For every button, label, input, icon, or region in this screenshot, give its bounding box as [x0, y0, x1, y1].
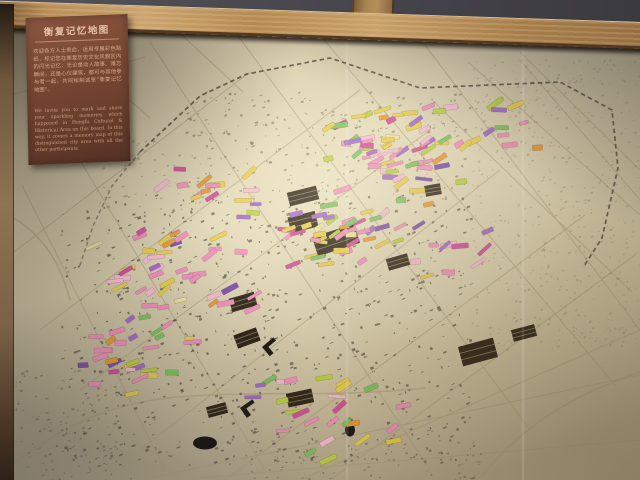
plaque-chinese-text: 欢迎各方人士来此，运用专属彩色贴纸，标记您在衡复历史文化风貌区内的闪光记忆：无论…: [33, 44, 122, 94]
landmark-buildings: [193, 183, 537, 449]
wood-frame-left: [0, 4, 14, 480]
photo-of-wall-map: 衡复记忆地图 欢迎各方人士来此，运用专属彩色贴纸，标记您在衡复历史文化风貌区内的…: [0, 0, 640, 480]
plaque-english-block: We invite you to mark and share your spa…: [34, 104, 123, 169]
plaque-english-text: We invite you to mark and share your spa…: [34, 104, 123, 153]
plaque-chinese-block: 欢迎各方人士来此，运用专属彩色贴纸，标记您在衡复历史文化风貌区内的闪光记忆：无论…: [33, 44, 122, 103]
info-plaque: 衡复记忆地图 欢迎各方人士来此，运用专属彩色贴纸，标记您在衡复历史文化风貌区内的…: [25, 14, 130, 165]
plaque-divider: [35, 38, 119, 42]
plaque-title: 衡复记忆地图: [33, 21, 121, 38]
